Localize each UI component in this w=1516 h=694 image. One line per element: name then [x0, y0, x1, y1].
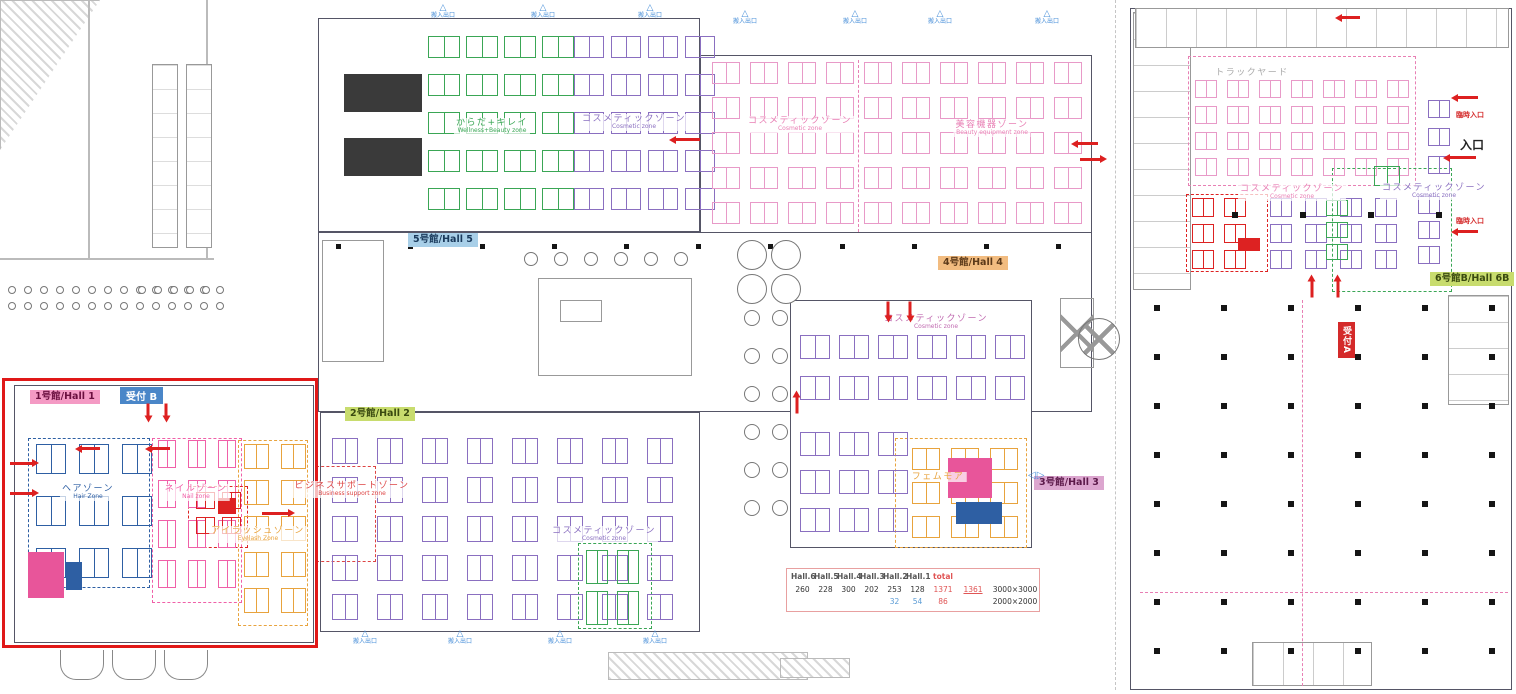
zone-label: ビジネスサポートゾーンBusiness support zone — [292, 481, 411, 498]
stairs-area — [608, 652, 808, 680]
loading-gate-marker: △搬入出口 — [643, 630, 667, 645]
featured-booth — [1238, 238, 1260, 251]
booth — [1428, 128, 1450, 146]
column — [1300, 212, 1306, 218]
table-cell: Hall.5 — [814, 572, 837, 583]
bus-bay — [112, 650, 156, 680]
table-cell: 300 — [837, 585, 860, 596]
booth — [542, 188, 574, 210]
booth — [377, 516, 403, 542]
booth — [422, 438, 448, 464]
booth — [685, 112, 715, 134]
column — [1288, 452, 1294, 458]
booth — [1291, 132, 1313, 150]
column — [1154, 648, 1160, 654]
booth — [1326, 222, 1348, 238]
booth — [504, 74, 536, 96]
booth — [712, 62, 740, 84]
booth — [712, 97, 740, 119]
booth — [1259, 80, 1281, 98]
booth — [1259, 158, 1281, 176]
booth — [1355, 132, 1377, 150]
booth — [422, 555, 448, 581]
column-circle — [744, 386, 760, 402]
booth — [647, 555, 673, 581]
column-circle — [202, 286, 210, 294]
booth — [1054, 97, 1082, 119]
booth — [978, 97, 1006, 119]
gate-label: 搬入出口 — [928, 19, 952, 25]
reception-badge: 受付 B — [120, 387, 163, 404]
booth — [685, 74, 715, 96]
zone-label-en: Wellness+Beauty zone — [456, 128, 528, 135]
column-circle — [24, 286, 32, 294]
table-cell: 128 — [906, 585, 929, 596]
booth — [647, 594, 673, 620]
booth — [1192, 198, 1214, 217]
booth — [467, 516, 493, 542]
booth — [902, 167, 930, 189]
column — [1288, 599, 1294, 605]
column-circle — [24, 302, 32, 310]
booth — [1418, 221, 1440, 239]
booth — [788, 167, 816, 189]
column-circle — [104, 286, 112, 294]
booth — [1323, 80, 1345, 98]
column — [1489, 599, 1495, 605]
column-circle — [771, 240, 801, 270]
table-cell: 86 — [929, 597, 957, 608]
zone-label-en: Cosmetic zone — [582, 124, 686, 131]
seating-block — [344, 138, 422, 176]
column — [1422, 648, 1428, 654]
booth — [557, 594, 583, 620]
column-circle — [737, 240, 767, 270]
booth — [542, 112, 574, 134]
column-circle — [772, 424, 788, 440]
table-cell: 260 — [791, 585, 814, 596]
column — [984, 244, 989, 249]
column — [1154, 305, 1160, 311]
booth — [1227, 158, 1249, 176]
booth — [1224, 250, 1246, 269]
booth — [750, 62, 778, 84]
booth — [617, 550, 639, 584]
table-cell: 2000×2000 — [989, 597, 1041, 608]
flow-arrow — [676, 138, 700, 141]
zone-label-jp: フェムモア — [912, 472, 965, 482]
column — [552, 244, 557, 249]
column-circle — [72, 302, 80, 310]
flow-arrow — [1080, 158, 1100, 161]
booth — [1016, 62, 1044, 84]
column — [1221, 403, 1227, 409]
column-circle — [644, 252, 658, 266]
booth — [602, 477, 628, 503]
structure-detail — [538, 278, 692, 376]
column-circle — [737, 274, 767, 304]
stage-block — [956, 502, 1002, 524]
booth — [512, 516, 538, 542]
booth — [428, 150, 460, 172]
booth — [995, 335, 1025, 359]
loading-gate-marker: △搬入出口 — [638, 4, 662, 19]
booth — [826, 167, 854, 189]
zone-label-en: Cosmetic zone — [884, 324, 988, 331]
booth — [1323, 132, 1345, 150]
gate-label: 搬入出口 — [643, 639, 667, 645]
table-cell — [957, 597, 989, 608]
booth — [504, 36, 536, 58]
loading-gate-marker: △搬入出口 — [531, 4, 555, 19]
hall-badge: 5号館/Hall 5 — [408, 233, 478, 247]
loading-gate-marker: △搬入出口 — [733, 10, 757, 25]
table-cell: 253 — [883, 585, 906, 596]
booth — [712, 202, 740, 224]
booth — [466, 150, 498, 172]
column-circle — [8, 302, 16, 310]
booth — [611, 36, 641, 58]
booth — [1305, 250, 1327, 269]
booth — [917, 335, 947, 359]
loading-gate-marker: △搬入出口 — [353, 630, 377, 645]
booth — [878, 376, 908, 400]
booth — [557, 438, 583, 464]
column — [912, 244, 917, 249]
column — [1288, 648, 1294, 654]
column — [1154, 452, 1160, 458]
column — [1355, 550, 1361, 556]
booth — [1323, 106, 1345, 124]
booth — [1387, 106, 1409, 124]
column-circle — [772, 310, 788, 326]
booth — [902, 97, 930, 119]
column-circle — [184, 302, 192, 310]
booth — [1195, 80, 1217, 98]
column — [1422, 501, 1428, 507]
booth — [466, 36, 498, 58]
flow-arrow — [10, 492, 32, 495]
loading-gate-marker: △搬入出口 — [448, 630, 472, 645]
booth — [940, 167, 968, 189]
booth — [902, 132, 930, 154]
flow-arrow — [1450, 156, 1476, 159]
column — [1355, 452, 1361, 458]
booth — [978, 202, 1006, 224]
table-cell: 1361 — [957, 585, 989, 596]
booth — [648, 74, 678, 96]
column-circle — [88, 302, 96, 310]
flow-arrow — [1078, 142, 1098, 145]
booth — [611, 74, 641, 96]
booth — [1291, 158, 1313, 176]
booth — [990, 482, 1018, 504]
booth — [586, 550, 608, 584]
gate-label: 搬入出口 — [638, 13, 662, 19]
booth — [422, 594, 448, 620]
booth — [422, 477, 448, 503]
booth — [611, 150, 641, 172]
booth — [839, 335, 869, 359]
booth — [917, 376, 947, 400]
hall-badge: 6号館B/Hall 6B — [1430, 272, 1514, 286]
booth — [1291, 106, 1313, 124]
zone-label: フェムモア — [910, 472, 967, 482]
column — [480, 244, 485, 249]
dashed-line — [1140, 592, 1508, 593]
column-circle — [744, 424, 760, 440]
booth — [1227, 132, 1249, 150]
booth — [647, 477, 673, 503]
table-cell: 228 — [814, 585, 837, 596]
booth — [467, 438, 493, 464]
booth — [750, 132, 778, 154]
table-cell: Hall.3 — [860, 572, 883, 583]
column — [1422, 305, 1428, 311]
column — [1221, 599, 1227, 605]
flow-arrow — [82, 447, 100, 450]
booth — [377, 555, 403, 581]
gate-label: 搬入出口 — [448, 639, 472, 645]
flow-arrow — [1311, 282, 1314, 298]
table-cell: 202 — [860, 585, 883, 596]
table-cell: 3000×3000 — [989, 585, 1041, 596]
booth — [685, 150, 715, 172]
column — [1489, 452, 1495, 458]
structure-detail — [322, 240, 384, 362]
zone-label-en: Eyelash Zone — [211, 536, 305, 543]
column — [1489, 354, 1495, 360]
booth — [428, 74, 460, 96]
booth — [990, 448, 1018, 470]
table-cell — [814, 597, 837, 608]
booth — [332, 438, 358, 464]
column — [1288, 403, 1294, 409]
column — [1221, 305, 1227, 311]
column — [1489, 501, 1495, 507]
booth — [1375, 224, 1397, 243]
booth — [800, 335, 830, 359]
booth — [1195, 158, 1217, 176]
column — [624, 244, 629, 249]
table-cell: Hall.1 — [906, 572, 929, 583]
booth-count-grid: Hall.6Hall.5Hall.4Hall.3Hall.2Hall.1tota… — [791, 572, 1035, 608]
booth — [1270, 224, 1292, 243]
booth — [940, 62, 968, 84]
column — [1489, 305, 1495, 311]
zone-label-en: Beauty equipment zone — [955, 130, 1028, 137]
zone-label: コスメティックゾーンCosmetic zone — [746, 116, 854, 133]
zone-label: コスメティックゾーンCosmetic zone — [580, 114, 688, 131]
table-cell: 54 — [906, 597, 929, 608]
zone-label-en: Nail zone — [165, 494, 228, 501]
gate-label: 搬入出口 — [548, 639, 572, 645]
gate-label: 搬入出口 — [531, 13, 555, 19]
column — [1355, 403, 1361, 409]
column-circle — [744, 310, 760, 326]
gate-label: 搬入出口 — [431, 13, 455, 19]
column-circle — [216, 286, 224, 294]
entrance-label: 臨時入口 — [1456, 216, 1484, 226]
column — [1355, 305, 1361, 311]
booth — [428, 36, 460, 58]
booth — [512, 438, 538, 464]
column — [1221, 648, 1227, 654]
hall-badge: 2号館/Hall 2 — [345, 407, 415, 421]
booth — [1259, 106, 1281, 124]
column — [336, 244, 341, 249]
booth — [648, 188, 678, 210]
booth — [712, 132, 740, 154]
flow-arrow — [152, 447, 170, 450]
booth — [467, 477, 493, 503]
booth — [1054, 62, 1082, 84]
column — [1288, 305, 1294, 311]
booth — [1227, 80, 1249, 98]
column — [1422, 550, 1428, 556]
table-cell: Hall.6 — [791, 572, 814, 583]
column — [1154, 599, 1160, 605]
booth — [1418, 246, 1440, 264]
zone-label: コスメティックゾーンCosmetic zone — [1238, 184, 1346, 201]
booth — [504, 150, 536, 172]
structure-detail — [1448, 295, 1509, 405]
parking-strip — [152, 64, 178, 248]
booth — [574, 150, 604, 172]
booth — [467, 594, 493, 620]
column-circle — [104, 302, 112, 310]
booth — [864, 62, 892, 84]
booth — [1259, 132, 1281, 150]
bus-bay — [60, 650, 104, 680]
booth — [956, 335, 986, 359]
booth — [800, 470, 830, 494]
booth — [1016, 167, 1044, 189]
column — [1154, 403, 1160, 409]
booth — [864, 132, 892, 154]
booth — [377, 438, 403, 464]
site-hatch-area — [0, 0, 100, 150]
flow-arrow — [1458, 230, 1478, 233]
booth — [800, 432, 830, 456]
column-circle — [168, 302, 176, 310]
column-circle — [120, 302, 128, 310]
column — [1422, 403, 1428, 409]
column-circle — [136, 302, 144, 310]
zone-label-en: Business support zone — [294, 491, 409, 498]
booth — [602, 438, 628, 464]
column-circle — [170, 286, 178, 294]
column — [1221, 550, 1227, 556]
booth — [839, 470, 869, 494]
column-circle — [56, 302, 64, 310]
gate-label: 搬入出口 — [1035, 19, 1059, 25]
gate-label: 搬入出口 — [353, 639, 377, 645]
column — [1422, 452, 1428, 458]
direction-marker: ◁▷ — [1028, 470, 1045, 481]
column-circle — [8, 286, 16, 294]
column — [1355, 648, 1361, 654]
column — [1221, 354, 1227, 360]
zone-label: アイラッシュゾーンEyelash Zone — [209, 526, 307, 543]
column-circle — [524, 252, 538, 266]
booth — [826, 202, 854, 224]
floor-plan-canvas: からだ+キレイWellness+Beauty zoneコスメティックゾーンCos… — [0, 0, 1516, 694]
table-cell: Hall.2 — [883, 572, 906, 583]
hall-badge: 1号館/Hall 1 — [30, 390, 100, 404]
booth — [466, 188, 498, 210]
booth — [800, 508, 830, 532]
booth — [1227, 106, 1249, 124]
booth — [332, 516, 358, 542]
booth — [1375, 250, 1397, 269]
column-circle — [772, 386, 788, 402]
column-circle — [72, 286, 80, 294]
column — [1232, 212, 1238, 218]
booth — [878, 432, 908, 456]
booth — [422, 516, 448, 542]
flow-arrow — [147, 404, 150, 416]
booth — [557, 477, 583, 503]
loading-gate-marker: △搬入出口 — [928, 10, 952, 25]
booth — [1195, 132, 1217, 150]
zone-label-en: Cosmetic zone — [552, 536, 656, 543]
column-circle — [152, 302, 160, 310]
booth — [1387, 132, 1409, 150]
column — [1436, 212, 1442, 218]
column-circle — [138, 286, 146, 294]
booth — [1355, 80, 1377, 98]
booth — [512, 594, 538, 620]
booth — [1428, 100, 1450, 118]
table-cell: Hall.4 — [837, 572, 860, 583]
column-circle — [40, 302, 48, 310]
table-cell — [989, 572, 1041, 583]
column-circle — [200, 302, 208, 310]
booth — [1305, 224, 1327, 243]
booth — [1016, 202, 1044, 224]
table-cell: total — [929, 572, 957, 583]
booth — [1323, 158, 1345, 176]
booth — [542, 36, 574, 58]
booth — [839, 376, 869, 400]
column — [1288, 501, 1294, 507]
column — [1154, 354, 1160, 360]
column-circle — [771, 274, 801, 304]
road-line — [88, 0, 90, 258]
column — [696, 244, 701, 249]
zone-label: コスメティックゾーンCosmetic zone — [1380, 183, 1488, 200]
booth — [512, 477, 538, 503]
dashed-line — [858, 60, 859, 232]
booth — [878, 508, 908, 532]
column — [1221, 452, 1227, 458]
booth — [1375, 198, 1397, 217]
column-circle — [154, 286, 162, 294]
booth-count-table: Hall.6Hall.5Hall.4Hall.3Hall.2Hall.1tota… — [786, 568, 1040, 612]
zone-label: ヘアゾーンHair Zone — [60, 484, 116, 501]
column — [1489, 648, 1495, 654]
booth — [839, 508, 869, 532]
column-circle — [744, 500, 760, 516]
booth — [864, 97, 892, 119]
booth — [332, 594, 358, 620]
dashed-line — [1302, 300, 1303, 686]
booth — [864, 167, 892, 189]
column-circle — [584, 252, 598, 266]
column — [840, 244, 845, 249]
stairs-area — [780, 658, 850, 678]
